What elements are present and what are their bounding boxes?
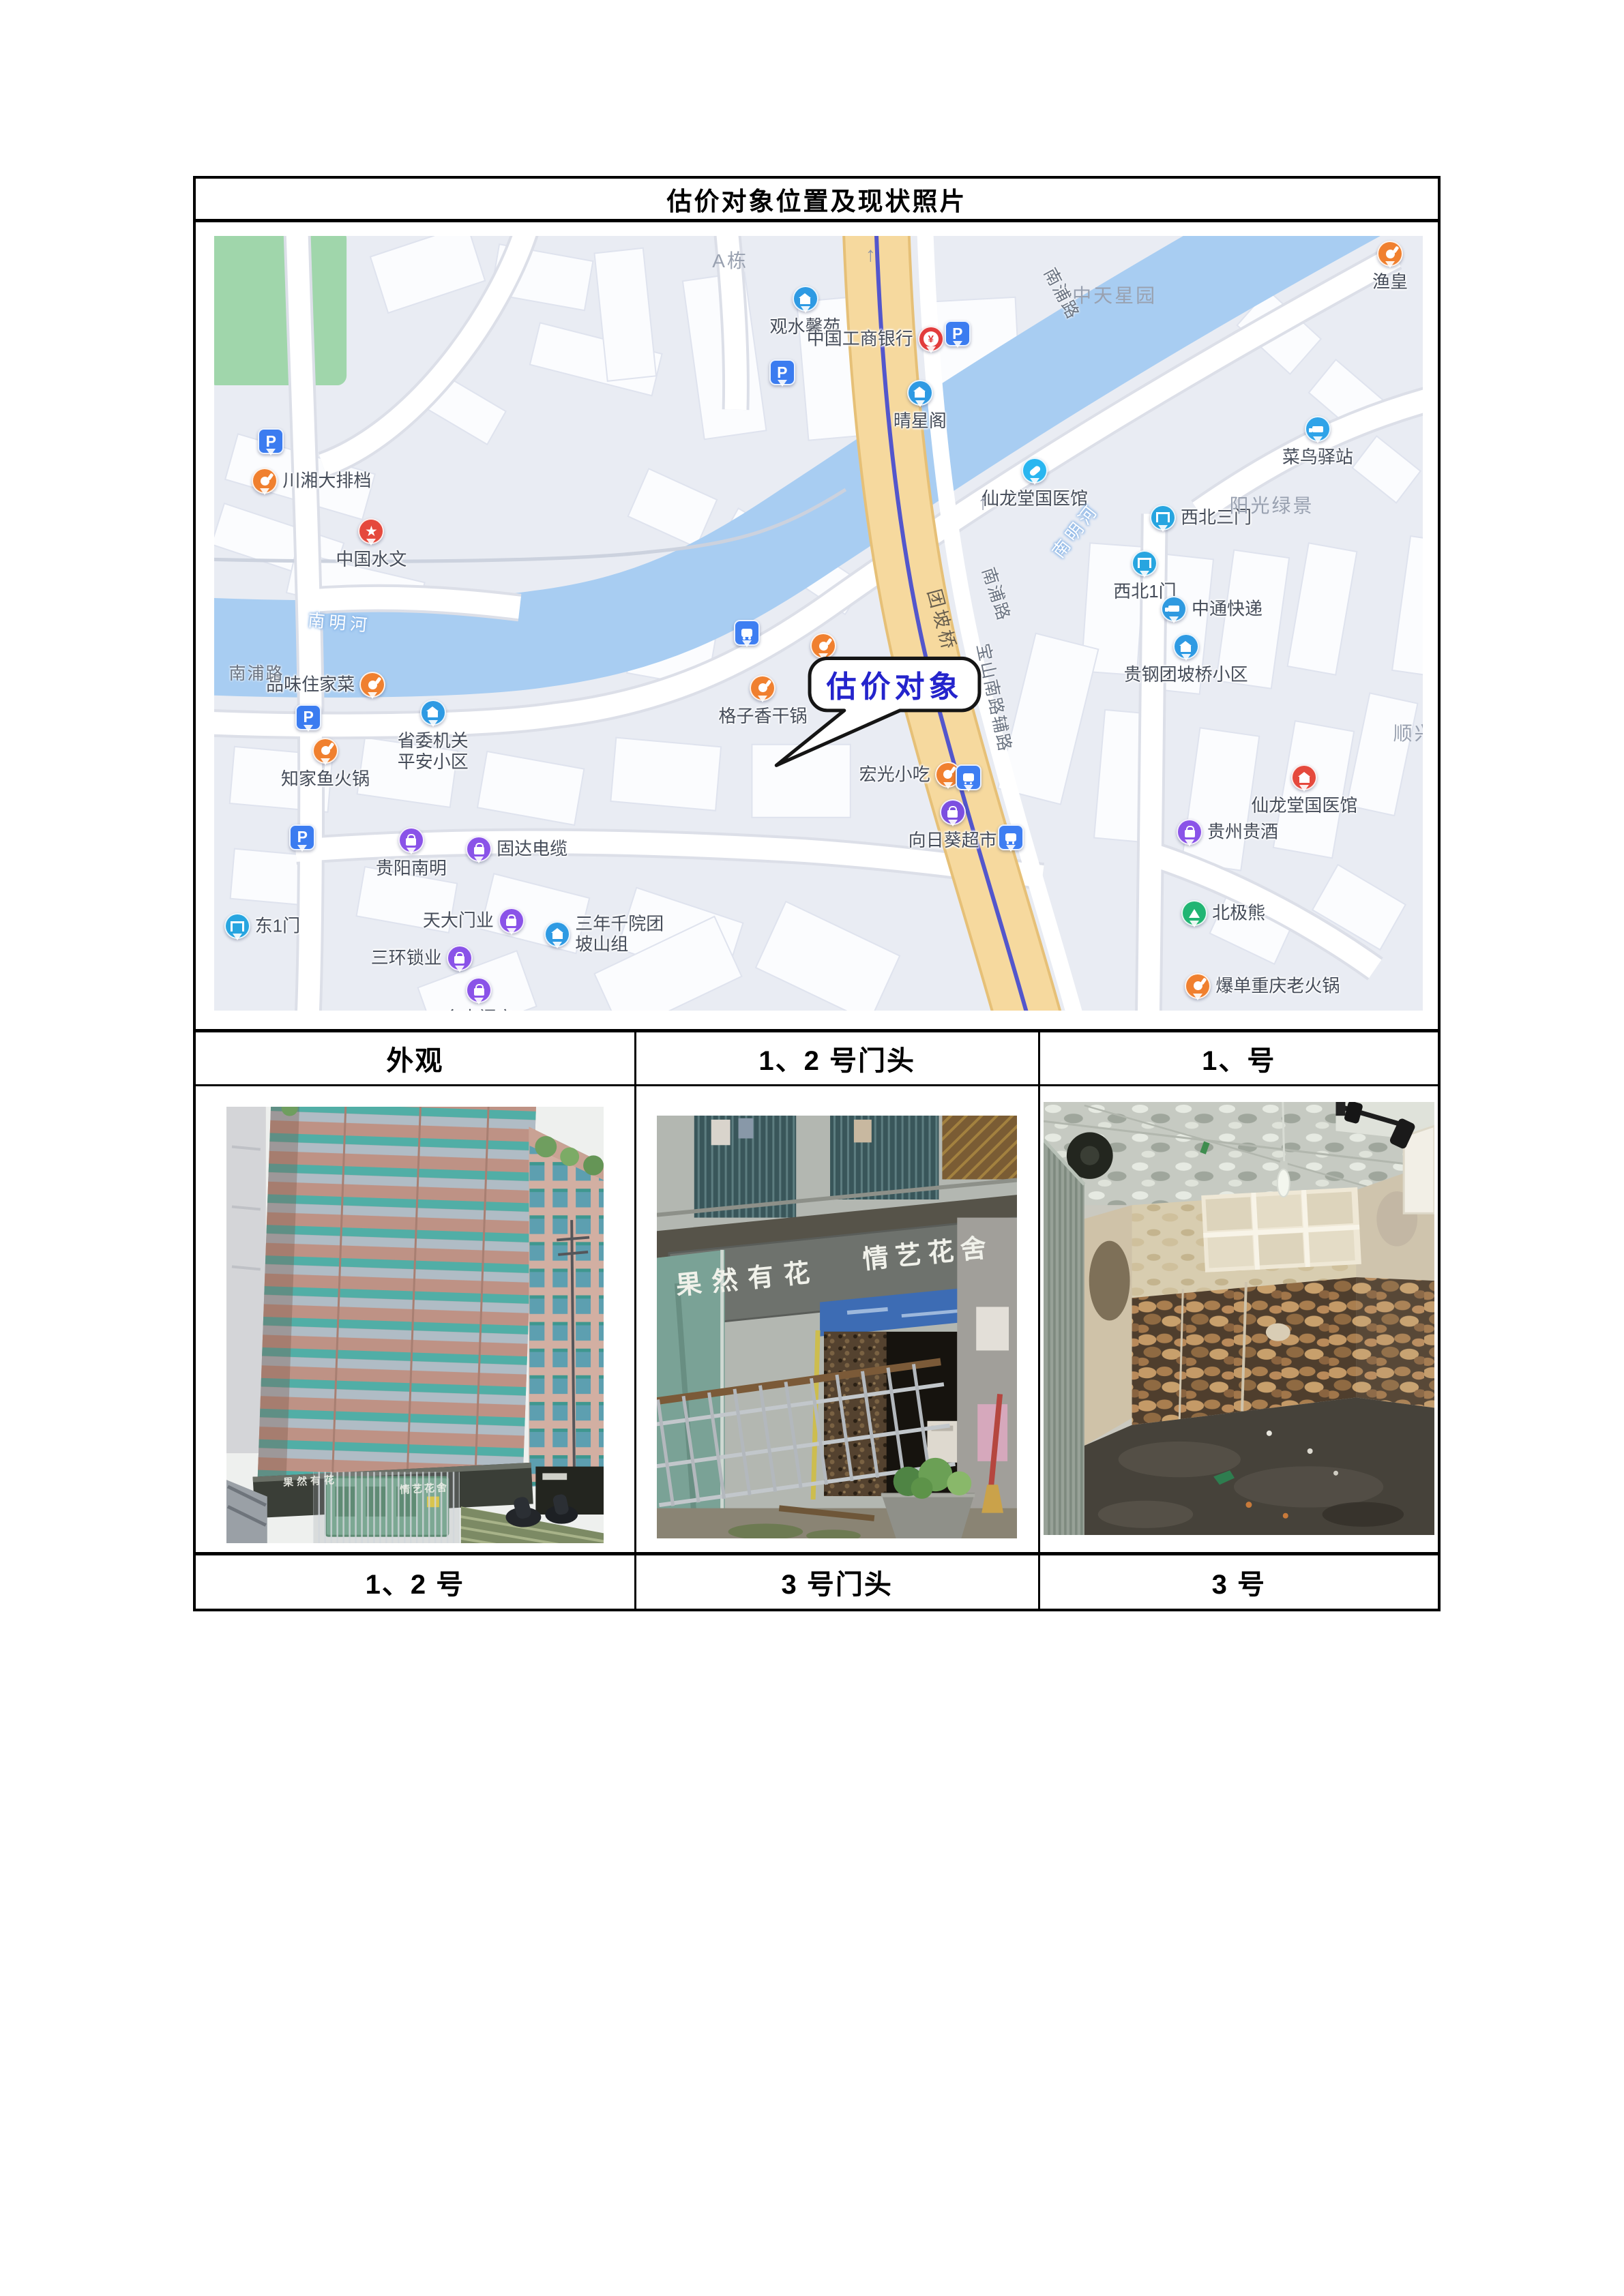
map-area-label: 中天星园 bbox=[1072, 281, 1157, 308]
exterior-sign-left: 果然有花 bbox=[282, 1472, 338, 1489]
map-cell: P川湘大排档★中国水文品味住家菜P知家鱼火锅省委机关平安小区P贵阳南明固达电缆东… bbox=[196, 222, 1438, 1032]
callout-label: 估价对象 bbox=[827, 662, 963, 706]
caption-no-1-2: 1、2 号 bbox=[196, 1555, 634, 1609]
map-road-label: 南明河 bbox=[1046, 497, 1104, 562]
photo-exterior: 果然有花 情艺花舍 bbox=[226, 1107, 604, 1543]
map-area-label: 顺兴 bbox=[1393, 719, 1423, 746]
photo-interior bbox=[1044, 1102, 1434, 1535]
road-direction-arrow-icon: ↑ bbox=[977, 492, 988, 515]
photo-cell-doorhead: 果然有花 情艺花舍 bbox=[634, 1086, 1038, 1552]
map-road-label: 南浦路 bbox=[977, 564, 1018, 624]
page-title: 估价对象位置及现状照片 bbox=[667, 181, 967, 218]
map-road-label: 南明河 bbox=[307, 607, 372, 637]
caption-no-1: 1、号 bbox=[1038, 1032, 1438, 1084]
caption-row-bottom: 1、2 号 3 号门头 3 号 bbox=[196, 1555, 1438, 1609]
caption-row-top: 外观 1、2 号门头 1、号 bbox=[196, 1032, 1438, 1086]
map-road-label: 团坡桥 bbox=[922, 586, 964, 654]
photo-row: 果然有花 情艺花舍 bbox=[196, 1086, 1438, 1555]
photo-cell-interior bbox=[1038, 1086, 1438, 1552]
caption-doorhead-3: 3 号门头 bbox=[634, 1555, 1038, 1609]
table-title-row: 估价对象位置及现状照片 bbox=[196, 179, 1438, 222]
report-table: 估价对象位置及现状照片 bbox=[193, 176, 1441, 1611]
map-road-label: 宝山南路辅路 bbox=[971, 641, 1018, 754]
map-area-label: A栋 bbox=[712, 246, 748, 273]
road-direction-arrow-icon: ↑ bbox=[866, 243, 876, 267]
map-canvas: P川湘大排档★中国水文品味住家菜P知家鱼火锅省委机关平安小区P贵阳南明固达电缆东… bbox=[214, 236, 1423, 1011]
document-page: 估价对象位置及现状照片 bbox=[0, 0, 1624, 2296]
photo-cell-exterior: 果然有花 情艺花舍 bbox=[196, 1086, 634, 1552]
exterior-sign-right: 情艺花舍 bbox=[400, 1480, 449, 1497]
caption-no-3: 3 号 bbox=[1038, 1555, 1438, 1609]
caption-exterior: 外观 bbox=[196, 1032, 634, 1084]
map-area-label: 阳光绿景 bbox=[1229, 491, 1314, 518]
photo-storefront: 果然有花 情艺花舍 bbox=[657, 1116, 1017, 1538]
map-road-label: 南浦路 bbox=[229, 660, 284, 685]
caption-doorhead-1-2: 1、2 号门头 bbox=[634, 1032, 1038, 1084]
map-label-layer: A栋中天星园阳光绿景顺兴南浦路南浦路南浦路团坡桥宝山南路辅路南明河南明河↑↑↑ bbox=[214, 236, 1423, 1011]
